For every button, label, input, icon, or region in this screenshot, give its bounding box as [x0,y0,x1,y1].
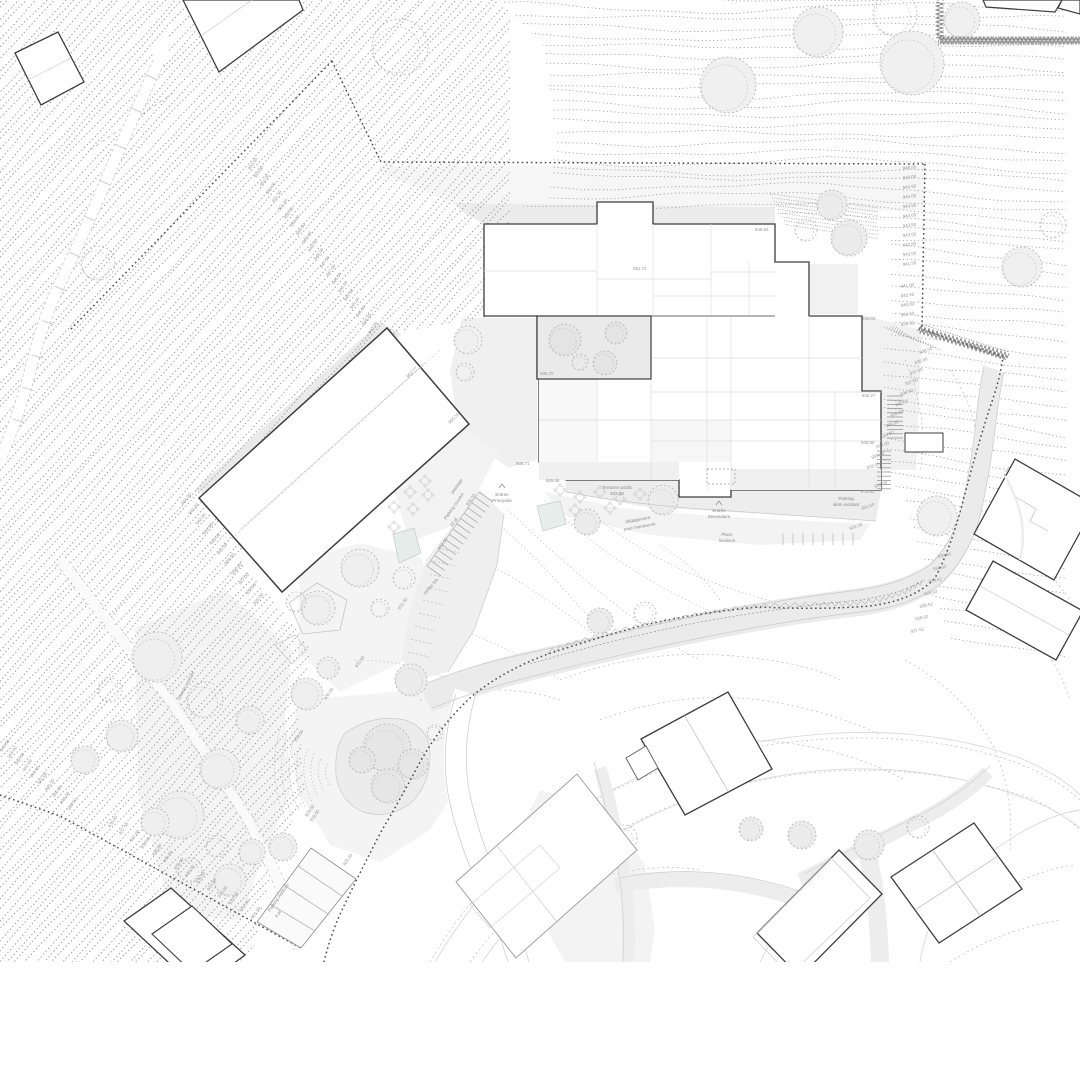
svg-text:932.58: 932.58 [610,491,624,496]
svg-text:935.70: 935.70 [540,371,554,376]
svg-text:Terrasse public: Terrasse public [602,485,633,490]
svg-text:Parking: Parking [838,496,854,501]
svg-text:979.82: 979.82 [861,489,875,494]
svg-text:949.94: 949.94 [755,227,769,232]
svg-text:905.68: 905.68 [546,478,560,483]
svg-text:908.71: 908.71 [516,461,530,466]
svg-text:Entrée: Entrée [495,492,509,497]
svg-text:943.90: 943.90 [861,440,875,445]
svg-text:961.72: 961.72 [633,266,647,271]
svg-text:944.02: 944.02 [862,316,876,321]
svg-text:Place: Place [721,532,733,537]
svg-text:Principale: Principale [492,498,512,503]
svg-text:livraison: livraison [719,538,736,543]
svg-text:Entrée: Entrée [712,508,726,513]
svg-text:idem existant: idem existant [833,502,860,507]
svg-text:Secondaire: Secondaire [708,514,731,519]
svg-text:942.27: 942.27 [862,393,876,398]
